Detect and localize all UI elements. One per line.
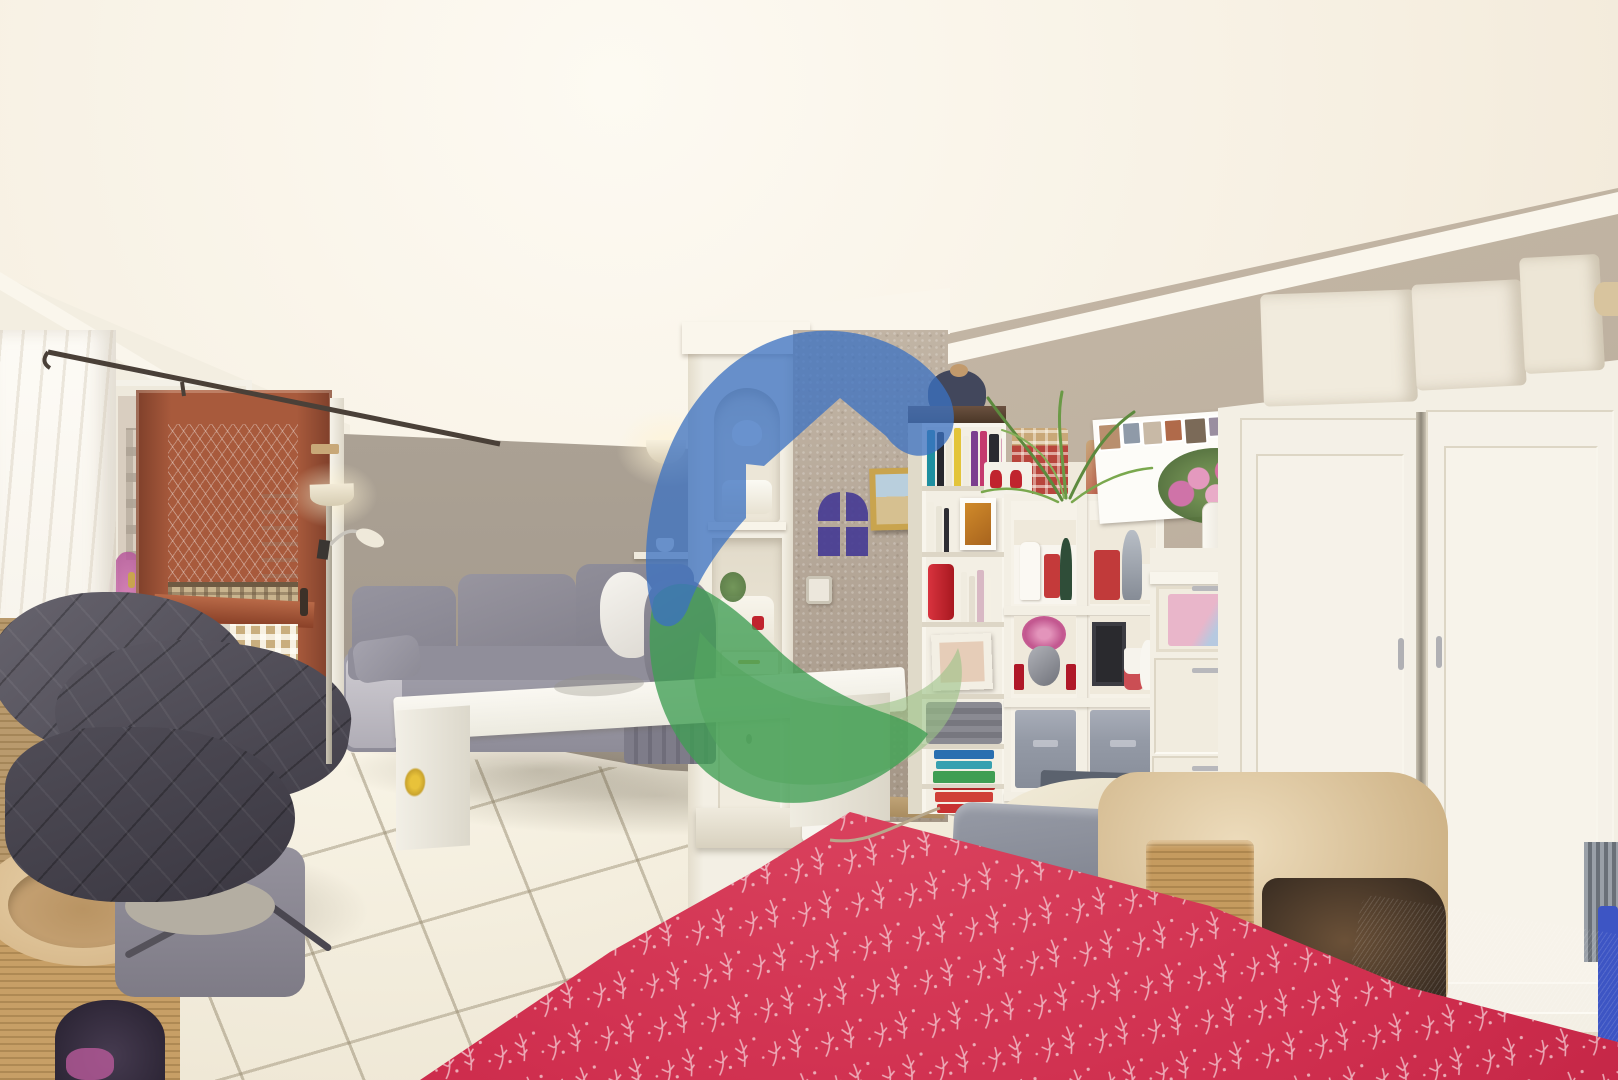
watermark-logo: [646, 331, 962, 803]
logo-house-window: [818, 492, 868, 556]
listing-photo: [0, 0, 1618, 1080]
curtain-rod: [44, 352, 500, 444]
logo-blue-arc: [646, 331, 954, 627]
lamp-reading-arm: [317, 525, 387, 560]
overlay-graphics: [0, 0, 1618, 1080]
power-cable: [830, 808, 940, 841]
plant-leaves: [982, 392, 1152, 502]
logo-green-arc: [650, 584, 928, 803]
